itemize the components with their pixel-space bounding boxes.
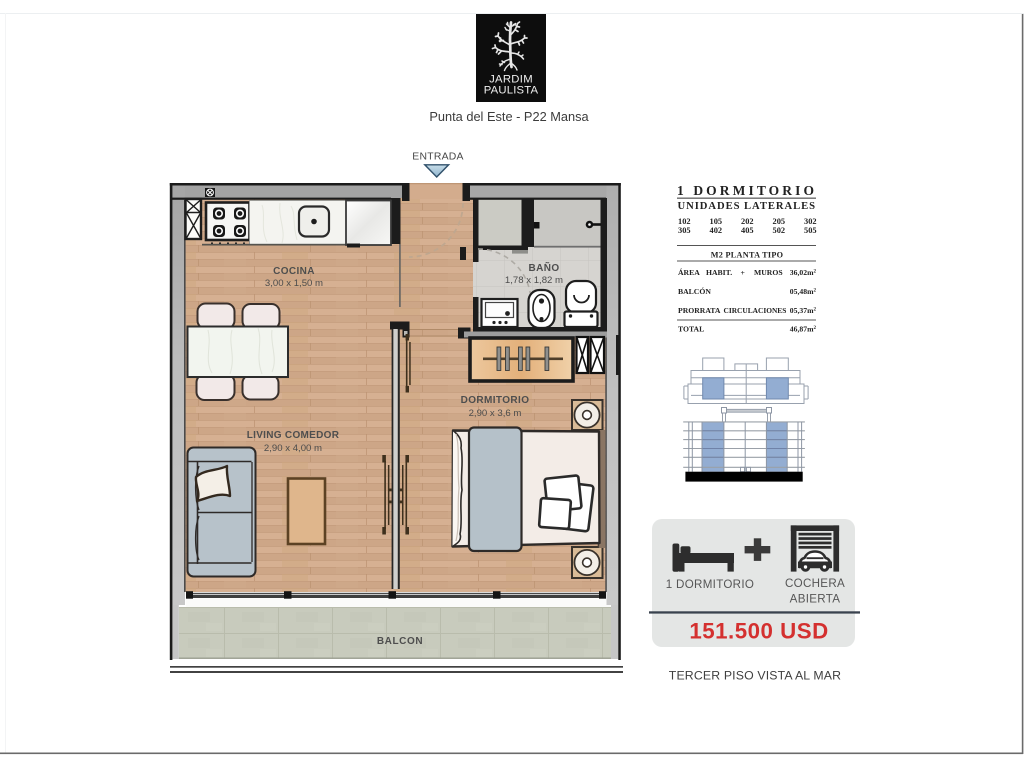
svg-text:502: 502: [773, 226, 786, 235]
svg-text:TERCER PISO VISTA AL MAR: TERCER PISO VISTA AL MAR: [669, 669, 841, 683]
svg-text:402: 402: [710, 226, 723, 235]
svg-text:PAULISTA: PAULISTA: [484, 85, 539, 97]
svg-text:05,37m2: 05,37m2: [790, 306, 817, 315]
svg-text:TOTAL: TOTAL: [678, 325, 704, 334]
svg-text:COCHERA: COCHERA: [785, 577, 845, 590]
svg-text:1,78 x 1,82 m: 1,78 x 1,82 m: [505, 275, 563, 286]
svg-text:UNIDADES LATERALES: UNIDADES LATERALES: [678, 201, 816, 212]
svg-text:HABIT.: HABIT.: [706, 268, 732, 277]
svg-text:302: 302: [804, 217, 817, 226]
svg-text:205: 205: [773, 217, 786, 226]
svg-text:ABIERTA: ABIERTA: [790, 593, 841, 606]
svg-text:1 DORMITORIO: 1 DORMITORIO: [666, 578, 754, 591]
svg-text:202: 202: [741, 217, 754, 226]
svg-text:BALCON: BALCON: [377, 636, 423, 647]
svg-text:MUROS: MUROS: [754, 268, 783, 277]
svg-text:36,02m2: 36,02m2: [790, 268, 817, 277]
svg-text:COCINA: COCINA: [273, 266, 315, 277]
svg-text:ÁREA: ÁREA: [678, 267, 700, 277]
svg-text:M2 PLANTA TIPO: M2 PLANTA TIPO: [711, 251, 784, 260]
svg-text:102: 102: [678, 217, 691, 226]
svg-text:Punta del Este - P22 Mansa: Punta del Este - P22 Mansa: [429, 109, 589, 124]
svg-text:DORMITORIO: DORMITORIO: [461, 395, 530, 406]
svg-text:ENTRADA: ENTRADA: [412, 152, 463, 163]
svg-text:151.500 USD: 151.500 USD: [689, 619, 828, 644]
svg-text:PRORRATA: PRORRATA: [678, 306, 721, 315]
svg-text:LIVING COMEDOR: LIVING COMEDOR: [247, 430, 340, 441]
svg-text:46,87m2: 46,87m2: [790, 325, 817, 334]
svg-text:2,90 x 4,00 m: 2,90 x 4,00 m: [264, 443, 322, 454]
svg-text:BAÑO: BAÑO: [528, 261, 559, 274]
svg-text:+: +: [741, 268, 745, 277]
svg-text:405: 405: [741, 226, 754, 235]
svg-text:05,48m2: 05,48m2: [790, 287, 817, 296]
svg-text:505: 505: [804, 226, 817, 235]
svg-text:2,90 x 3,6 m: 2,90 x 3,6 m: [469, 408, 522, 419]
svg-text:BALCÓN: BALCÓN: [678, 286, 711, 296]
svg-text:105: 105: [710, 217, 723, 226]
svg-text:305: 305: [678, 226, 691, 235]
svg-text:3,00 x 1,50 m: 3,00 x 1,50 m: [265, 278, 323, 289]
svg-text:1 DORMITORIO: 1 DORMITORIO: [677, 183, 817, 198]
svg-text:CIRCULACIONES: CIRCULACIONES: [724, 306, 787, 315]
